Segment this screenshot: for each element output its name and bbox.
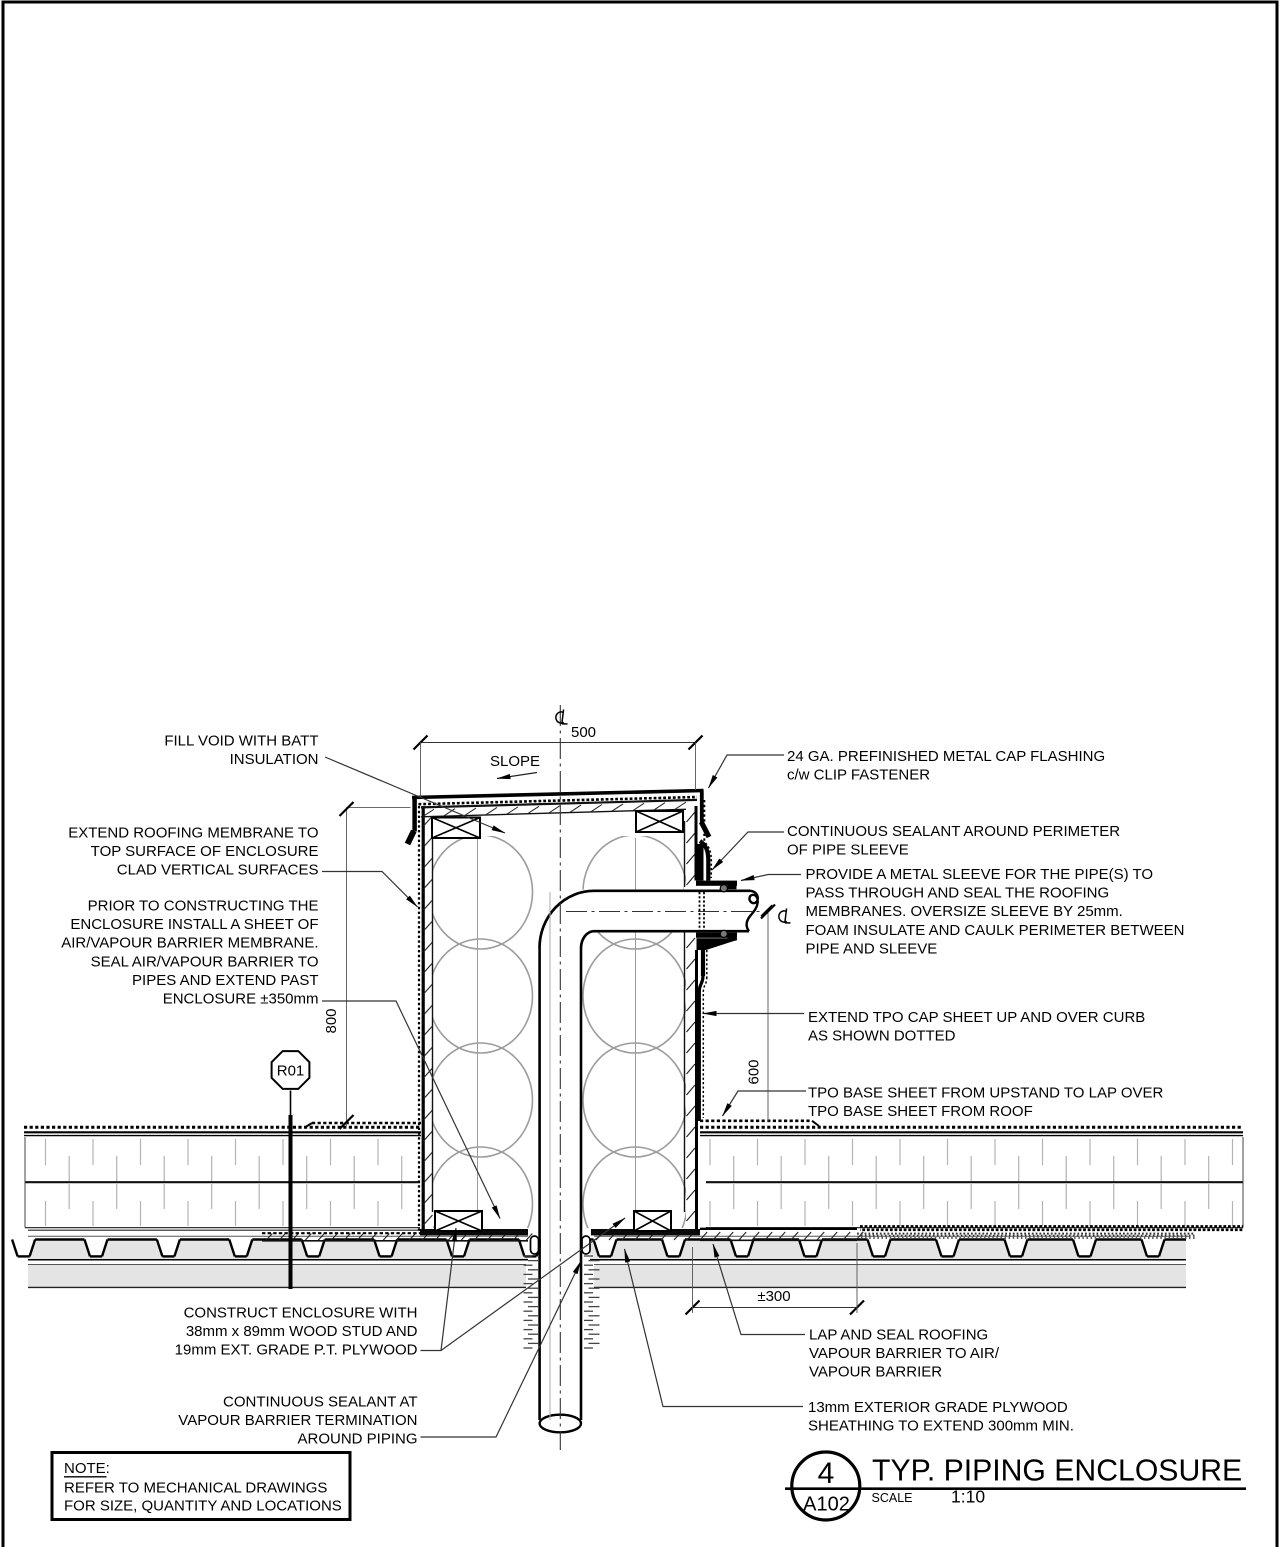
svg-text:TPO BASE SHEET FROM UPSTAND TO: TPO BASE SHEET FROM UPSTAND TO LAP OVER [808, 1085, 1164, 1102]
svg-text:500: 500 [571, 724, 596, 741]
svg-text:AS SHOWN DOTTED: AS SHOWN DOTTED [808, 1028, 956, 1045]
svg-text:VAPOUR BARRIER TO AIR/: VAPOUR BARRIER TO AIR/ [809, 1345, 1000, 1362]
svg-text:EXTEND TPO CAP SHEET UP AND OV: EXTEND TPO CAP SHEET UP AND OVER CURB [808, 1009, 1145, 1026]
svg-text:ENCLOSURE INSTALL A SHEET OF: ENCLOSURE INSTALL A SHEET OF [70, 916, 318, 933]
svg-text:FOR SIZE, QUANTITY AND LOCATIO: FOR SIZE, QUANTITY AND LOCATIONS [64, 1498, 342, 1515]
svg-text:FOAM INSULATE AND CAULK PERIME: FOAM INSULATE AND CAULK PERIMETER BETWEE… [806, 922, 1185, 939]
svg-text:PASS THROUGH AND SEAL THE ROOF: PASS THROUGH AND SEAL THE ROOFING [806, 885, 1110, 902]
svg-text:MEMBRANES. OVERSIZE SLEEVE BY: MEMBRANES. OVERSIZE SLEEVE BY 25mm. [806, 903, 1123, 920]
svg-text:13mm EXTERIOR GRADE PLYWOOD: 13mm EXTERIOR GRADE PLYWOOD [808, 1399, 1068, 1416]
svg-text:INSULATION: INSULATION [230, 751, 319, 768]
svg-text:TOP SURFACE OF ENCLOSURE: TOP SURFACE OF ENCLOSURE [91, 843, 319, 860]
svg-text:CONTINUOUS SEALANT AROUND PERI: CONTINUOUS SEALANT AROUND PERIMETER [787, 823, 1120, 840]
svg-text:PIPE AND SLEEVE: PIPE AND SLEEVE [806, 940, 938, 957]
svg-text:NOTE:: NOTE: [64, 1460, 110, 1477]
svg-text:EXTEND ROOFING MEMBRANE TO: EXTEND ROOFING MEMBRANE TO [68, 825, 318, 842]
svg-text:FILL VOID WITH BATT: FILL VOID WITH BATT [164, 733, 318, 750]
svg-text:VAPOUR BARRIER TERMINATION: VAPOUR BARRIER TERMINATION [178, 1412, 417, 1429]
svg-text:LAP AND SEAL ROOFING: LAP AND SEAL ROOFING [809, 1327, 988, 1344]
svg-text:ENCLOSURE ±350mm: ENCLOSURE ±350mm [163, 991, 319, 1008]
svg-text:19mm EXT. GRADE P.T. PLYWOOD: 19mm EXT. GRADE P.T. PLYWOOD [175, 1342, 418, 1359]
svg-text:±300: ±300 [757, 1288, 790, 1305]
svg-text:AIR/VAPOUR BARRIER MEMBRANE.: AIR/VAPOUR BARRIER MEMBRANE. [61, 935, 318, 952]
svg-text:SHEATHING TO EXTEND 300mm MIN.: SHEATHING TO EXTEND 300mm MIN. [808, 1418, 1074, 1435]
svg-text:24 GA. PREFINISHED METAL CAP F: 24 GA. PREFINISHED METAL CAP FLASHING [787, 748, 1105, 765]
svg-text:38mm x 89mm WOOD STUD AND: 38mm x 89mm WOOD STUD AND [186, 1323, 418, 1340]
svg-text:SCALE: SCALE [872, 1491, 913, 1505]
svg-text:AROUND PIPING: AROUND PIPING [297, 1431, 417, 1448]
svg-text:c/w CLIP FASTENER: c/w CLIP FASTENER [787, 767, 930, 784]
svg-text:CONTINUOUS SEALANT AT: CONTINUOUS SEALANT AT [223, 1394, 417, 1411]
svg-text:VAPOUR BARRIER: VAPOUR BARRIER [809, 1364, 942, 1381]
svg-text:REFER TO MECHANICAL DRAWINGS: REFER TO MECHANICAL DRAWINGS [64, 1480, 327, 1497]
svg-text:CLAD VERTICAL SURFACES: CLAD VERTICAL SURFACES [117, 862, 319, 879]
svg-text:CONSTRUCT ENCLOSURE WITH: CONSTRUCT ENCLOSURE WITH [184, 1305, 418, 1322]
svg-text:PROVIDE A METAL SLEEVE FOR THE: PROVIDE A METAL SLEEVE FOR THE PIPE(S) T… [806, 866, 1154, 883]
svg-text:R01: R01 [277, 1063, 305, 1080]
svg-text:OF PIPE SLEEVE: OF PIPE SLEEVE [787, 842, 909, 859]
svg-text:4: 4 [818, 1457, 835, 1490]
svg-text:TYP. PIPING ENCLOSURE: TYP. PIPING ENCLOSURE [872, 1455, 1242, 1488]
svg-text:600: 600 [746, 1059, 763, 1084]
svg-text:800: 800 [323, 1008, 340, 1033]
svg-text:PIPES AND EXTEND PAST: PIPES AND EXTEND PAST [132, 972, 318, 989]
svg-text:SLOPE: SLOPE [490, 753, 540, 770]
svg-text:TPO BASE SHEET FROM ROOF: TPO BASE SHEET FROM ROOF [808, 1103, 1033, 1120]
svg-text:PRIOR TO CONSTRUCTING THE: PRIOR TO CONSTRUCTING THE [88, 898, 319, 915]
svg-text:1:10: 1:10 [951, 1487, 985, 1507]
svg-text:SEAL AIR/VAPOUR BARRIER TO: SEAL AIR/VAPOUR BARRIER TO [91, 953, 319, 970]
svg-text:A102: A102 [803, 1494, 850, 1516]
